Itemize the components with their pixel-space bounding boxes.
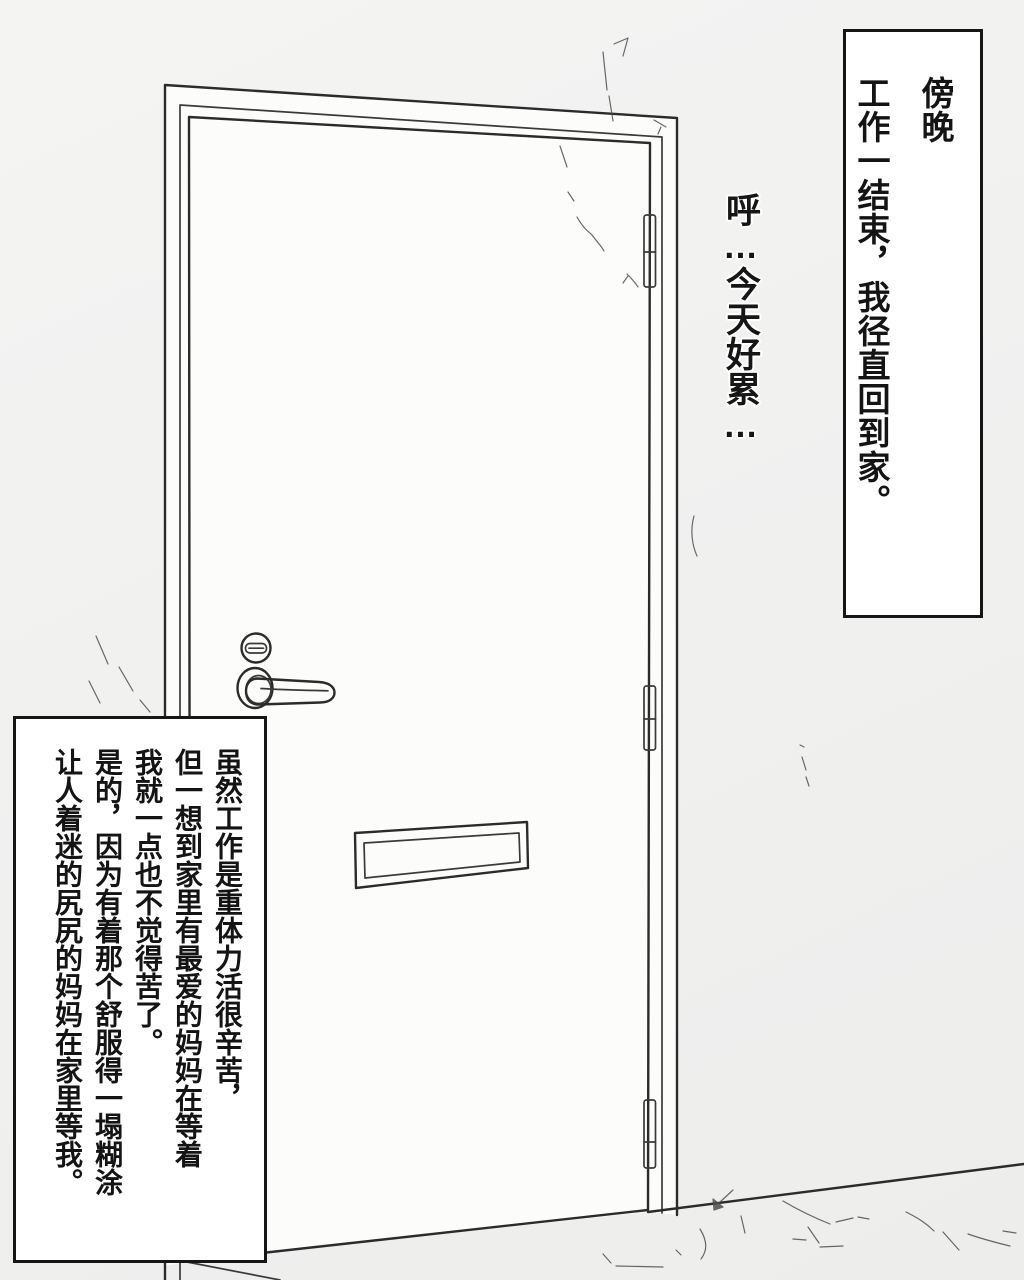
manga-page: 傍晚 工作一结束，我径直回到家。 呼…今天好累… 虽然工作是重体力活很辛苦， 但… [0,0,1024,1280]
caption-line: 让人着迷的尻尻的妈妈在家里等我。 [47,748,87,1196]
caption-box-top-right: 傍晚 工作一结束，我径直回到家。 [843,29,983,618]
caption-line: 虽然工作是重体力活很辛苦， [207,748,247,1196]
caption-line: 是的，因为有着那个舒服得一塌糊涂 [87,748,127,1196]
caption-line: 工作一结束，我径直回到家。 [839,76,903,518]
caption-line: 但一想到家里有最爱的妈妈在等着 [167,748,207,1196]
caption-line: 我就一点也不觉得苦了。 [127,748,167,1196]
floating-monologue-text: 呼…今天好累… [704,192,776,452]
caption-top-right-text: 傍晚 工作一结束，我径直回到家。 [839,76,967,518]
caption-bottom-left-text: 虽然工作是重体力活很辛苦， 但一想到家里有最爱的妈妈在等着 我就一点也不觉得苦了… [47,748,247,1196]
caption-box-bottom-left: 虽然工作是重体力活很辛苦， 但一想到家里有最爱的妈妈在等着 我就一点也不觉得苦了… [13,716,267,1263]
caption-line: 傍晚 [903,76,967,518]
floor-line-right [648,1164,1024,1212]
floor-line-left [187,1262,280,1280]
